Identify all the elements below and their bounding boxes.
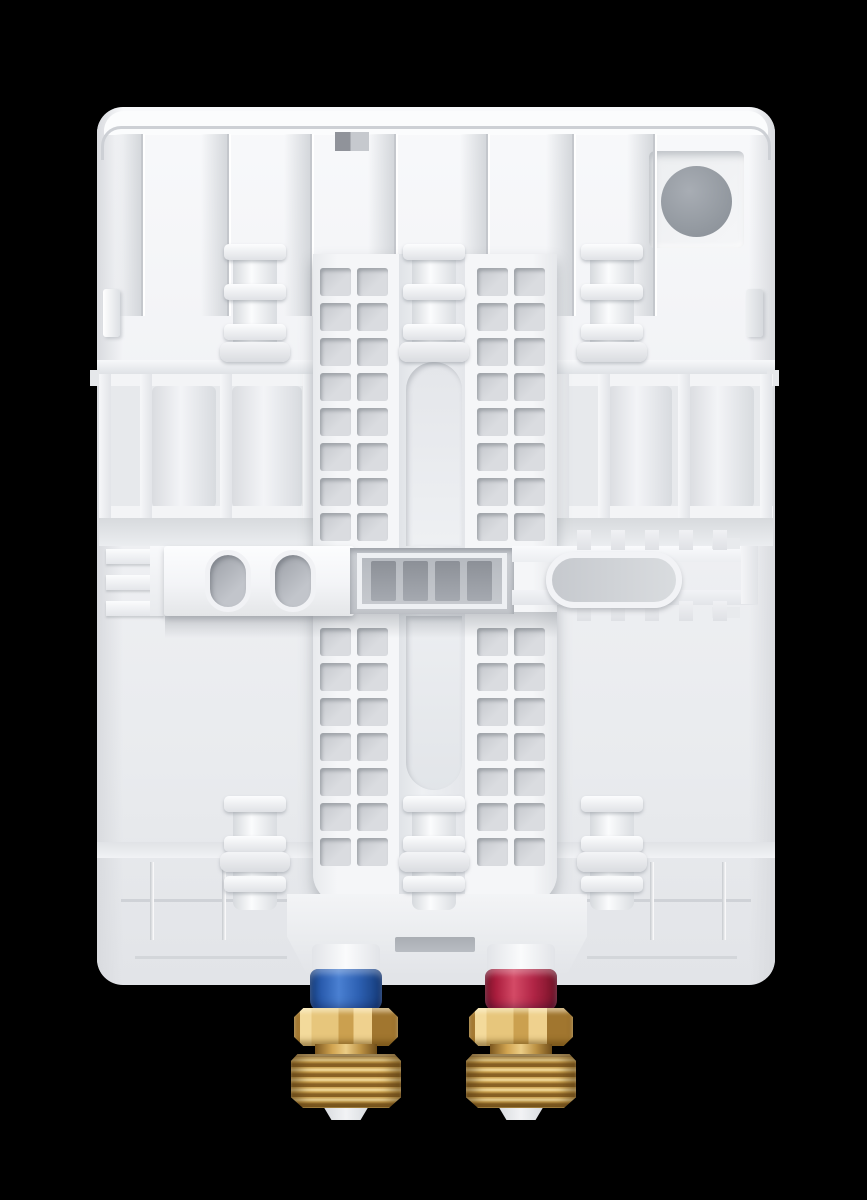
ladder-hole-upper-r7-c2 <box>357 478 388 506</box>
ladder-hole-lower-r4-c1 <box>320 733 351 761</box>
ladder-hole-lower-r6-c1 <box>320 803 351 831</box>
skirt-rib-1 <box>150 862 154 940</box>
right-comb-tooth-bottom-5 <box>713 601 727 621</box>
boss-top-2-ring-3 <box>403 324 465 340</box>
ladder-hole-lower-r3-c4 <box>514 698 545 726</box>
ladder-hole-lower-r7-c3 <box>477 838 508 866</box>
ladder-hole-upper-r5-c1 <box>320 408 351 436</box>
ladder-hole-upper-r2-c4 <box>514 303 545 331</box>
ladder-hole-upper-r8-c4 <box>514 513 545 541</box>
left-frame-rail-bottom <box>99 506 315 518</box>
side-tab-left <box>103 289 120 337</box>
cold-inlet-tip <box>320 1106 372 1120</box>
boss-top-1-ring-3 <box>224 324 286 340</box>
center-plate-slot-3 <box>435 561 460 601</box>
boss-top-1-ring-1 <box>224 244 286 260</box>
ladder-hole-upper-r1-c2 <box>357 268 388 296</box>
cable-knockout-circle <box>661 166 732 237</box>
ladder-hole-lower-r3-c3 <box>477 698 508 726</box>
cold-inlet-collar <box>310 969 382 1012</box>
boss-bottom-2-ring-2 <box>403 836 465 852</box>
ladder-hole-upper-r7-c3 <box>477 478 508 506</box>
right-frame-cylinder-2 <box>688 386 754 508</box>
ladder-hole-lower-r7-c4 <box>514 838 545 866</box>
boss-bottom-3-base-disc <box>577 852 647 872</box>
ladder-hole-lower-r6-c2 <box>357 803 388 831</box>
hot-outlet-collar <box>485 969 557 1012</box>
center-slot-lower <box>406 616 462 790</box>
right-frame-rail-v3 <box>678 374 690 518</box>
boss-top-1-base-disc <box>220 342 290 362</box>
inner-bottom-line-left <box>135 956 287 959</box>
ledge-left <box>97 360 315 374</box>
ladder-hole-lower-r5-c1 <box>320 768 351 796</box>
right-comb-tooth-top-5 <box>713 530 727 550</box>
right-frame-cylinder-1 <box>608 386 672 508</box>
ladder-hole-lower-r4-c2 <box>357 733 388 761</box>
boss-bottom-2-ring-1 <box>403 796 465 812</box>
ladder-hole-lower-r4-c3 <box>477 733 508 761</box>
ladder-hole-lower-r6-c4 <box>514 803 545 831</box>
ladder-hole-upper-r8-c1 <box>320 513 351 541</box>
ladder-hole-upper-r1-c1 <box>320 268 351 296</box>
mounting-band-left <box>164 546 354 616</box>
ledge-right <box>555 360 775 374</box>
boss-bottom-3-ring-3 <box>581 876 643 892</box>
ladder-hole-lower-r2-c1 <box>320 663 351 691</box>
ladder-hole-lower-r5-c2 <box>357 768 388 796</box>
right-frame-rail-v4 <box>760 374 772 518</box>
left-frame-rail-v3 <box>220 374 232 518</box>
ladder-hole-lower-r5-c4 <box>514 768 545 796</box>
ladder-hole-upper-r1-c3 <box>477 268 508 296</box>
ladder-hole-upper-r5-c2 <box>357 408 388 436</box>
ladder-hole-lower-r2-c4 <box>514 663 545 691</box>
ladder-hole-upper-r8-c3 <box>477 513 508 541</box>
ladder-hole-upper-r7-c1 <box>320 478 351 506</box>
ladder-hole-upper-r3-c2 <box>357 338 388 366</box>
boss-top-3-ring-1 <box>581 244 643 260</box>
ladder-hole-upper-r2-c1 <box>320 303 351 331</box>
boss-top-2-ring-2 <box>403 284 465 300</box>
boss-top-3-ring-3 <box>581 324 643 340</box>
hot-outlet-tip <box>495 1106 547 1120</box>
ladder-hole-lower-r6-c3 <box>477 803 508 831</box>
mid-lower-shade-left <box>99 518 315 546</box>
boss-bottom-3-ring-1 <box>581 796 643 812</box>
ladder-hole-upper-r4-c4 <box>514 373 545 401</box>
ladder-hole-upper-r6-c4 <box>514 443 545 471</box>
skirt-rib-2 <box>222 862 226 940</box>
ladder-hole-upper-r8-c2 <box>357 513 388 541</box>
left-frame-cylinder-1 <box>152 386 216 508</box>
left-frame-rail-v2 <box>140 374 152 518</box>
center-plate-slot-4 <box>467 561 492 601</box>
ladder-hole-lower-r3-c1 <box>320 698 351 726</box>
ladder-hole-upper-r5-c4 <box>514 408 545 436</box>
product-photo-canvas <box>0 0 867 1200</box>
ladder-hole-upper-r6-c1 <box>320 443 351 471</box>
boss-bottom-1-ring-3 <box>224 876 286 892</box>
ladder-hole-lower-r2-c3 <box>477 663 508 691</box>
left-frame-rail-v1 <box>99 374 111 518</box>
center-plate-slot-2 <box>403 561 428 601</box>
skirt-rib-3 <box>650 862 654 940</box>
right-comb-tooth-bottom-4 <box>679 601 693 621</box>
ladder-hole-upper-r2-c2 <box>357 303 388 331</box>
boss-top-3-ring-2 <box>581 284 643 300</box>
boss-top-3-base-disc <box>577 342 647 362</box>
ladder-hole-lower-r3-c2 <box>357 698 388 726</box>
center-plate-slot-1 <box>371 561 396 601</box>
skirt-rib-4 <box>722 862 726 940</box>
mounting-slot-oval-2 <box>270 550 316 612</box>
ladder-hole-upper-r6-c2 <box>357 443 388 471</box>
ladder-hole-upper-r3-c3 <box>477 338 508 366</box>
boss-bottom-2-base-disc <box>399 852 469 872</box>
right-comb-tooth-top-4 <box>679 530 693 550</box>
right-comb-tooth-top-2 <box>611 530 625 550</box>
ladder-hole-lower-r7-c2 <box>357 838 388 866</box>
ladder-hole-upper-r4-c2 <box>357 373 388 401</box>
ladder-hole-lower-r7-c1 <box>320 838 351 866</box>
boss-top-1-ring-2 <box>224 284 286 300</box>
center-slot-upper <box>406 362 462 546</box>
top-notch <box>335 132 369 151</box>
left-frame-cylinder-2 <box>232 386 302 508</box>
panel-rib-1 <box>141 134 145 316</box>
ladder-hole-lower-r5-c3 <box>477 768 508 796</box>
ladder-hole-upper-r7-c4 <box>514 478 545 506</box>
boss-bottom-1-ring-2 <box>224 836 286 852</box>
bottom-center-slot <box>395 937 475 952</box>
ladder-hole-upper-r2-c3 <box>477 303 508 331</box>
right-frame-rail-bottom <box>557 506 773 518</box>
bracket-slot-stadium <box>546 552 682 608</box>
right-frame-rail-top <box>557 374 773 386</box>
right-frame-rail-v1 <box>557 374 569 518</box>
ladder-hole-lower-r2-c2 <box>357 663 388 691</box>
ladder-hole-upper-r3-c1 <box>320 338 351 366</box>
inner-bottom-line-right <box>587 956 737 959</box>
right-comb-tooth-top-3 <box>645 530 659 550</box>
mounting-slot-oval-1 <box>205 550 251 612</box>
panel-rib-6 <box>572 134 576 316</box>
hot-outlet-threads <box>466 1054 576 1108</box>
boss-bottom-1-ring-1 <box>224 796 286 812</box>
side-tab-right <box>746 289 763 337</box>
boss-top-2-base-disc <box>399 342 469 362</box>
ladder-hole-upper-r5-c3 <box>477 408 508 436</box>
boss-bottom-2-ring-3 <box>403 876 465 892</box>
cold-inlet-threads <box>291 1054 401 1108</box>
ladder-hole-upper-r6-c3 <box>477 443 508 471</box>
boss-top-2-ring-1 <box>403 244 465 260</box>
ladder-hole-upper-r4-c1 <box>320 373 351 401</box>
ladder-hole-upper-r4-c3 <box>477 373 508 401</box>
ladder-hole-upper-r3-c4 <box>514 338 545 366</box>
right-band-end <box>741 546 758 604</box>
right-frame-rail-v2 <box>598 374 610 518</box>
ladder-hole-lower-r4-c4 <box>514 733 545 761</box>
boss-bottom-3-ring-2 <box>581 836 643 852</box>
panel-rib-7 <box>653 134 657 316</box>
left-frame-rail-top <box>99 374 315 386</box>
cold-inlet-hex-nut <box>294 1008 398 1046</box>
ladder-hole-upper-r1-c4 <box>514 268 545 296</box>
hot-outlet-hex-nut <box>469 1008 573 1046</box>
boss-bottom-1-base-disc <box>220 852 290 872</box>
right-comb-tooth-top-1 <box>577 530 591 550</box>
panel-rib-shade-3 <box>284 134 310 316</box>
